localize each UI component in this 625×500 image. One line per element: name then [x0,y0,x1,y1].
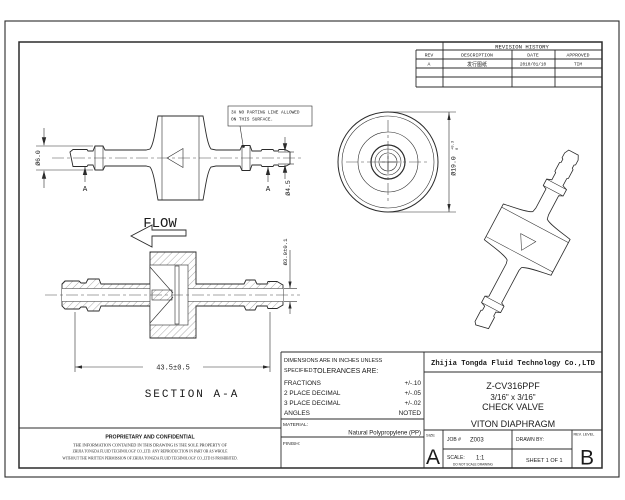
dim-length-text: 43.5±0.5 [156,365,190,373]
proprietary-line1: THE INFORMATION CONTAINED IN THIS DRAWIN… [73,443,227,448]
isometric-view [447,135,607,345]
part-diaphragm: VITON DIAPHRAGM [471,419,555,429]
finish-label: FINISH: [283,441,300,447]
side-view: Ø6.0 A A Ø4.5 3X NO PARTING LINE ALLOWED… [34,106,312,200]
proprietary-block: PROPRIETARY AND CONFIDENTIAL THE INFORMA… [19,428,281,462]
scale-note: DO NOT SCALE DRAWING [453,463,493,467]
section-view: Ø3.0±0.1 43.5±0.5 SECTION A-A [45,238,300,401]
tolerance-block: DIMENSIONS ARE IN INCHES UNLESS SPECIFIE… [281,352,424,468]
tol-row-fractions-value: +/-.10 [404,380,421,387]
note-line2: ON THIS SURFACE. [231,118,273,123]
part-number: Z-CV316PPF [486,381,540,391]
section-cut-left: A [83,167,88,194]
scale-label: SCALE: [447,455,465,461]
drawn-by-label: DRAWN BY: [516,437,544,443]
rev-level-label: REV. LEVEL [574,433,595,437]
drawing-sheet: REVISION HISTORY REV DESCRIPTION DATE AP… [0,0,625,500]
rev-level-value: B [580,447,594,470]
tol-header-2a: SPECIFIED. [284,368,314,374]
dimension-d3: Ø3.0±0.1 [282,238,297,314]
size-label: SIZE [426,433,435,438]
dim-d3-text: Ø3.0±0.1 [282,238,289,265]
dim-d6-text: Ø6.0 [34,150,42,166]
scale-value: 1:1 [476,456,485,462]
engineering-drawing-canvas: REVISION HISTORY REV DESCRIPTION DATE AP… [0,0,625,500]
part-size: 3/16" x 3/16" [490,393,535,402]
revision-row-approved: TIM [574,63,582,68]
dim-d19-text: Ø19.0 [450,156,458,176]
job-label: JOB # [447,437,461,443]
material-value: Natural Polypropylene (PP) [348,431,421,437]
revision-title: REVISION HISTORY [495,43,549,50]
note-line1: 3X NO PARTING LINE ALLOWED [231,111,300,116]
title-block: Zhijia Tongda Fluid Technology Co.,LTD Z… [424,352,602,470]
revision-col-description: DESCRIPTION [461,53,493,59]
revision-table: REVISION HISTORY REV DESCRIPTION DATE AP… [416,42,602,87]
size-value: A [426,446,440,469]
front-view: Ø19.0 +0.3 0 [338,112,460,212]
proprietary-line3: WITHOUT THE WRITTEN PERMISSION OF ZHIJIA… [62,457,237,462]
tol-row-fractions-label: FRACTIONS [284,380,321,387]
flow-annotation: FLOW [131,216,186,247]
revision-col-rev: REV [425,53,434,59]
tol-row-3place-value: +/-.02 [404,400,421,407]
tol-row-3place-label: 3 PLACE DECIMAL [284,400,341,407]
proprietary-line2: ZHIJIA TONGDA FLUID TECHNOLOGY CO.,LTD. … [73,450,229,455]
datum-a-right: A [266,186,271,194]
job-value: Z003 [470,438,484,444]
parting-line-note: 3X NO PARTING LINE ALLOWED ON THIS SURFA… [228,106,312,148]
revision-col-approved: APPROVED [566,53,589,59]
dim-d45-text: Ø4.5 [284,180,292,196]
datum-a-left: A [83,186,88,194]
revision-row-description: 发行图纸 [467,61,487,68]
company-name: Zhijia Tongda Fluid Technology Co.,LTD [431,360,596,368]
revision-row-rev: A [428,62,431,68]
section-label: SECTION A-A [145,389,240,401]
revision-col-date: DATE [527,53,539,59]
section-cut-right: A [266,167,271,194]
tol-row-angles-label: ANGLES [284,410,310,417]
dim-d19-tol-lower: 0 [456,147,460,150]
part-product: CHECK VALVE [482,402,544,412]
leader-dot [242,145,245,148]
revision-row-date: 2010/01/10 [520,63,547,68]
tol-row-angles-value: NOTED [399,410,422,417]
sheet-label: SHEET 1 OF 1 [526,458,563,464]
dim-d19-tol-upper: +0.3 [452,140,456,150]
tol-header-1: DIMENSIONS ARE IN INCHES UNLESS [284,358,383,364]
tol-row-2place-value: +/-.05 [404,390,421,397]
proprietary-title: PROPRIETARY AND CONFIDENTIAL [105,435,195,441]
revision-row: A 发行图纸 2010/01/10 TIM [428,61,583,68]
tol-header-2b: TOLERANCES ARE: [313,368,378,375]
tol-row-2place-label: 2 PLACE DECIMAL [284,390,341,397]
material-label: MATERIAL: [283,422,308,428]
